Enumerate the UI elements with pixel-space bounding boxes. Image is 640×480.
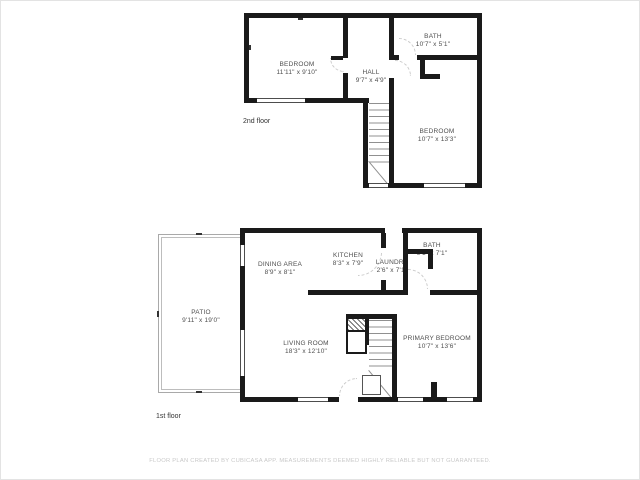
wall xyxy=(431,382,437,402)
room-name: KITCHEN xyxy=(333,252,364,260)
room-name: BEDROOM xyxy=(276,61,317,69)
room-dimensions: 11'11" x 9'10" xyxy=(276,69,317,77)
floor-label-1st: 1st floor xyxy=(156,413,181,420)
wall xyxy=(389,55,399,60)
wall xyxy=(403,233,408,295)
room-dimensions: 10'7" x 13'3" xyxy=(418,136,456,144)
room-name: LIVING ROOM xyxy=(283,340,329,348)
wall xyxy=(428,254,433,269)
wall xyxy=(343,18,348,58)
door-opening xyxy=(385,228,402,233)
wall xyxy=(389,18,394,58)
room-label-bath-2f: BATH 10'7" x 5'1" xyxy=(416,33,450,49)
room-label-hall: HALL 9'7" x 4'9" xyxy=(356,69,387,85)
room-name: BATH xyxy=(416,33,450,41)
wall xyxy=(240,397,482,402)
floor-1-plan: PATIO 9'11" x 19'0" DINING AREA 8'9" x 8… xyxy=(1,1,639,479)
wall xyxy=(417,55,478,60)
room-label-bedroom-2f-left: BEDROOM 11'11" x 9'10" xyxy=(276,61,317,77)
wall xyxy=(308,290,408,295)
room-dimensions: 10'7" x 13'6" xyxy=(403,343,471,351)
room-name: DINING AREA xyxy=(258,261,302,269)
room-label-dining-area: DINING AREA 8'9" x 8'1" xyxy=(258,261,302,277)
window xyxy=(240,245,245,266)
room-label-living-room: LIVING ROOM 18'3" x 12'10" xyxy=(283,340,329,356)
wall xyxy=(240,228,482,233)
window xyxy=(298,397,328,402)
room-dimensions: 18'3" x 12'10" xyxy=(283,348,329,356)
wall xyxy=(244,13,482,18)
room-name: HALL xyxy=(356,69,387,77)
wall xyxy=(392,314,397,402)
room-label-primary-bedroom: PRIMARY BEDROOM 10'7" x 13'6" xyxy=(403,335,471,351)
under-stair-closet xyxy=(362,375,381,395)
room-label-bedroom-2f-right: BEDROOM 10'7" x 13'3" xyxy=(418,128,456,144)
staircase xyxy=(369,103,389,163)
disclaimer-text: FLOOR PLAN CREATED BY CUBICASA APP. MEAS… xyxy=(149,458,491,464)
patio-marker xyxy=(196,391,202,393)
fireplace-hatch xyxy=(348,319,365,332)
window xyxy=(369,183,388,188)
wall xyxy=(343,73,348,98)
wall xyxy=(381,233,386,248)
room-dimensions: 9'7" x 4'9" xyxy=(356,77,387,85)
window xyxy=(240,330,245,376)
wall xyxy=(389,78,394,183)
wall-marker xyxy=(298,18,303,20)
room-dimensions: 8'9" x 8'1" xyxy=(258,269,302,277)
wall xyxy=(430,290,482,295)
room-name: PATIO xyxy=(182,309,220,317)
fireplace xyxy=(346,317,367,354)
window xyxy=(424,183,465,188)
room-dimensions: 9'11" x 19'0" xyxy=(182,317,220,325)
window xyxy=(398,397,423,402)
room-label-patio: PATIO 9'11" x 19'0" xyxy=(182,309,220,325)
window xyxy=(257,98,305,103)
wall xyxy=(363,98,368,188)
wall xyxy=(477,228,482,402)
room-dimensions: 8'3" x 7'9" xyxy=(333,260,364,268)
wall xyxy=(381,280,386,295)
door-swing xyxy=(408,269,428,289)
patio-marker xyxy=(196,233,202,235)
room-label-kitchen: KITCHEN 8'3" x 7'9" xyxy=(333,252,364,268)
wall xyxy=(477,13,482,188)
window xyxy=(447,397,473,402)
room-name: PRIMARY BEDROOM xyxy=(403,335,471,343)
room-name: BEDROOM xyxy=(418,128,456,136)
door-swing xyxy=(339,378,357,396)
room-dimensions: 10'7" x 5'1" xyxy=(416,41,450,49)
wall xyxy=(420,74,440,79)
floor-plan-canvas: BEDROOM 11'11" x 9'10" BATH 10'7" x 5'1"… xyxy=(0,0,640,480)
front-door-opening xyxy=(339,397,358,402)
staircase xyxy=(369,320,392,370)
wall xyxy=(244,13,249,103)
wall xyxy=(331,56,343,60)
floor-label-2nd: 2nd floor xyxy=(243,118,270,125)
patio-marker xyxy=(157,311,159,317)
wall-marker xyxy=(249,45,251,50)
